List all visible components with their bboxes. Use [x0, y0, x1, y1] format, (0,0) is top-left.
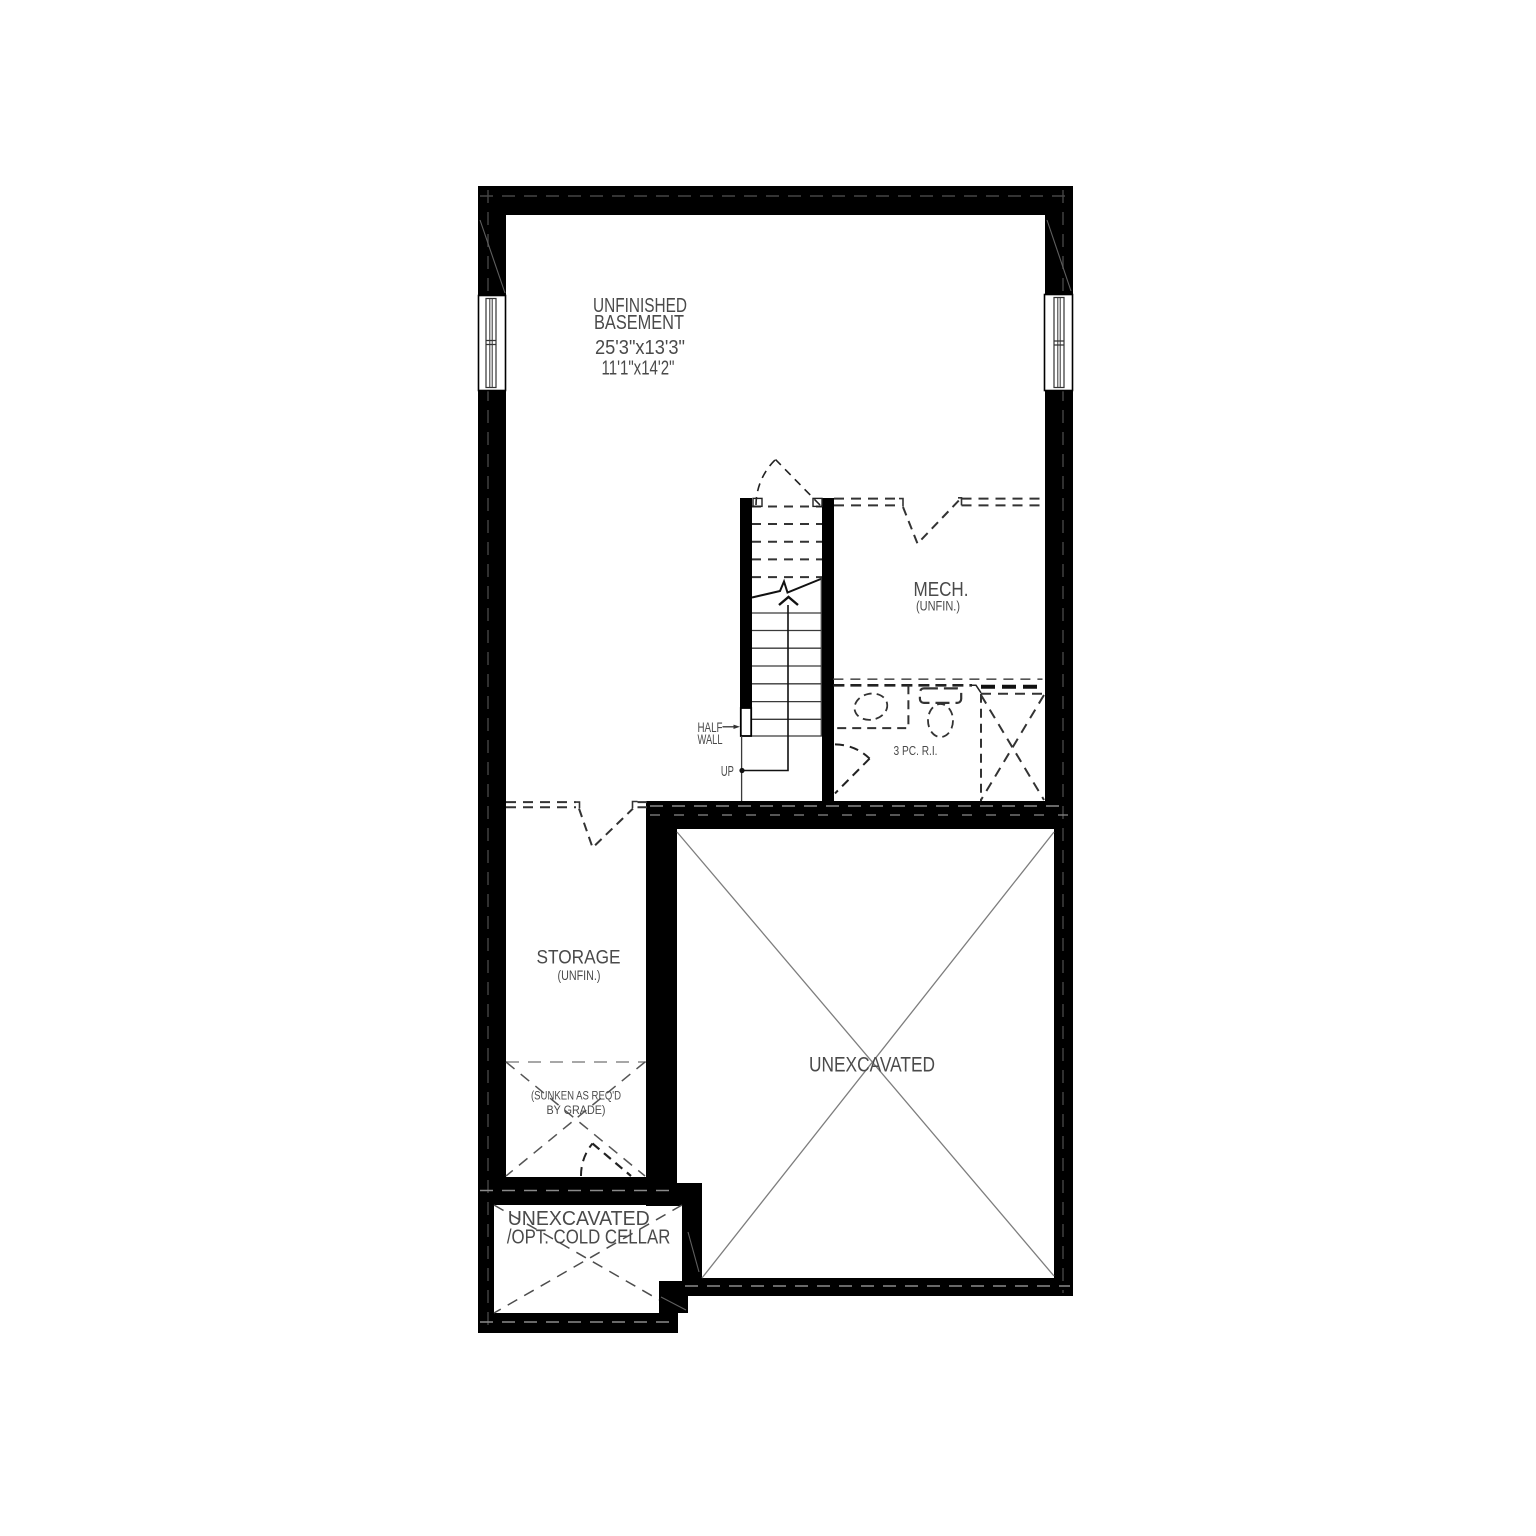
svg-text:BASEMENT: BASEMENT [594, 312, 684, 334]
svg-text:/OPT. COLD CELLAR: /OPT. COLD CELLAR [507, 1227, 671, 1249]
svg-text:WALL: WALL [698, 731, 723, 747]
svg-text:11'1"x14'2": 11'1"x14'2" [602, 357, 675, 380]
svg-text:UNEXCAVATED: UNEXCAVATED [809, 1053, 935, 1077]
svg-text:BY GRADE): BY GRADE) [547, 1105, 606, 1117]
svg-text:3 PC. R.I.: 3 PC. R.I. [894, 744, 938, 758]
svg-text:STORAGE: STORAGE [537, 948, 621, 969]
svg-text:(UNFIN.): (UNFIN.) [916, 598, 960, 614]
svg-text:UP: UP [721, 763, 734, 780]
svg-text:(SUNKEN AS REQ'D: (SUNKEN AS REQ'D [531, 1091, 621, 1103]
svg-text:(UNFIN.): (UNFIN.) [558, 968, 601, 983]
